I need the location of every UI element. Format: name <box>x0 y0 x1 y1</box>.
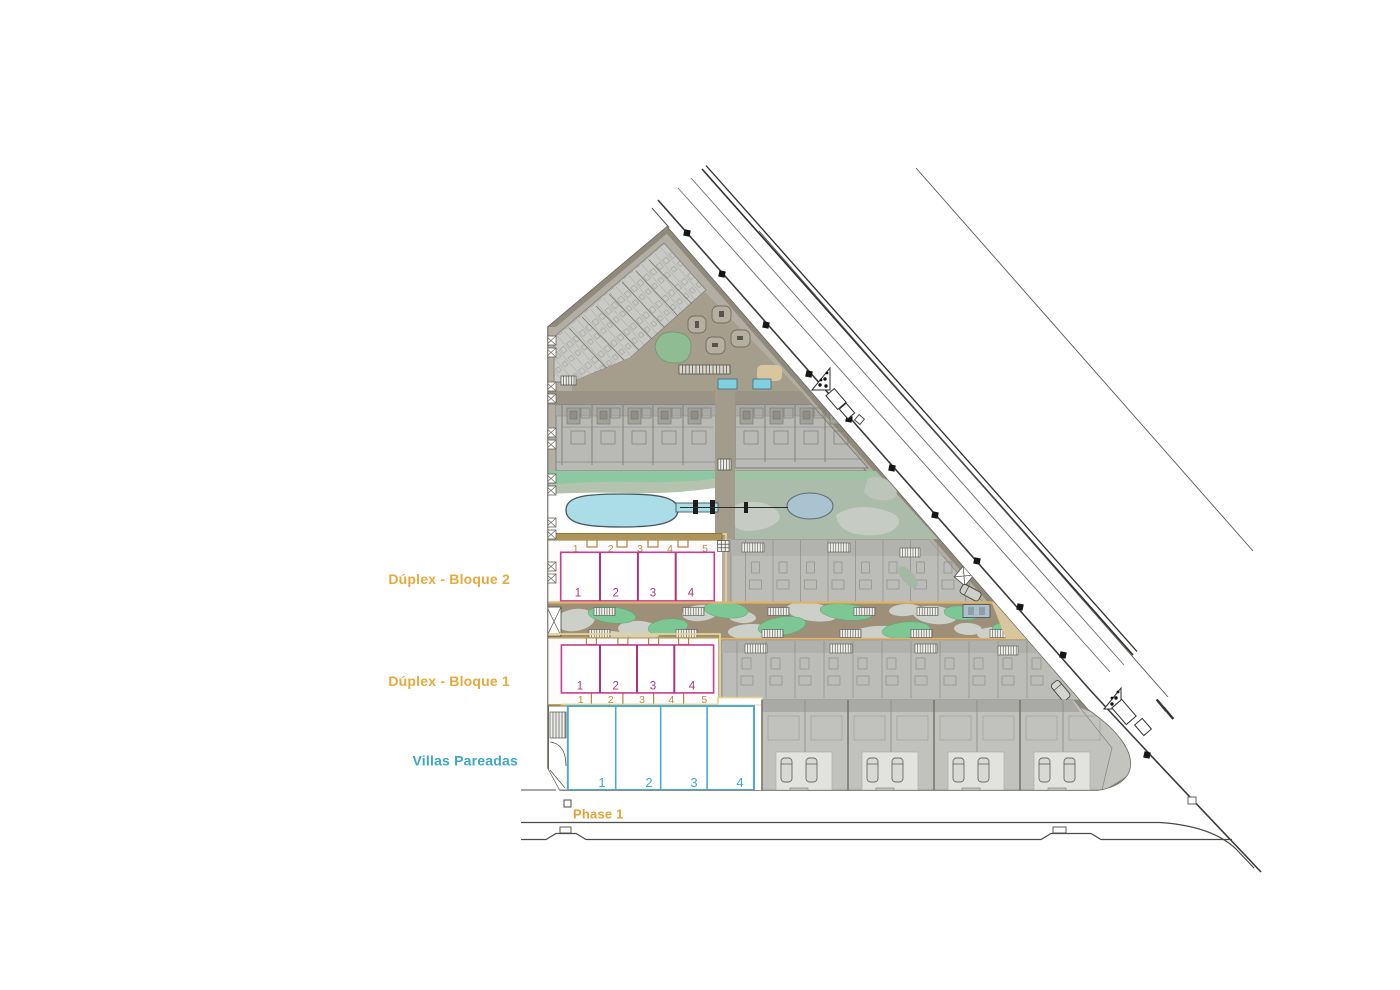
svg-text:2: 2 <box>612 588 618 600</box>
svg-text:4: 4 <box>689 681 696 693</box>
svg-text:2: 2 <box>612 681 618 693</box>
svg-text:1: 1 <box>577 681 583 693</box>
svg-text:Dúplex - Bloque 1: Dúplex - Bloque 1 <box>388 673 510 689</box>
svg-text:1: 1 <box>598 775 605 790</box>
svg-text:Phase 1: Phase 1 <box>573 807 624 822</box>
svg-text:4: 4 <box>688 588 695 600</box>
svg-text:3: 3 <box>690 775 697 790</box>
svg-text:3: 3 <box>650 588 656 600</box>
svg-text:Villas Pareadas: Villas Pareadas <box>413 753 518 769</box>
svg-text:4: 4 <box>736 775 743 790</box>
svg-text:2: 2 <box>645 775 652 790</box>
svg-text:Dúplex - Bloque 2: Dúplex - Bloque 2 <box>388 571 510 587</box>
svg-text:3: 3 <box>650 681 656 693</box>
svg-text:1: 1 <box>575 588 581 600</box>
